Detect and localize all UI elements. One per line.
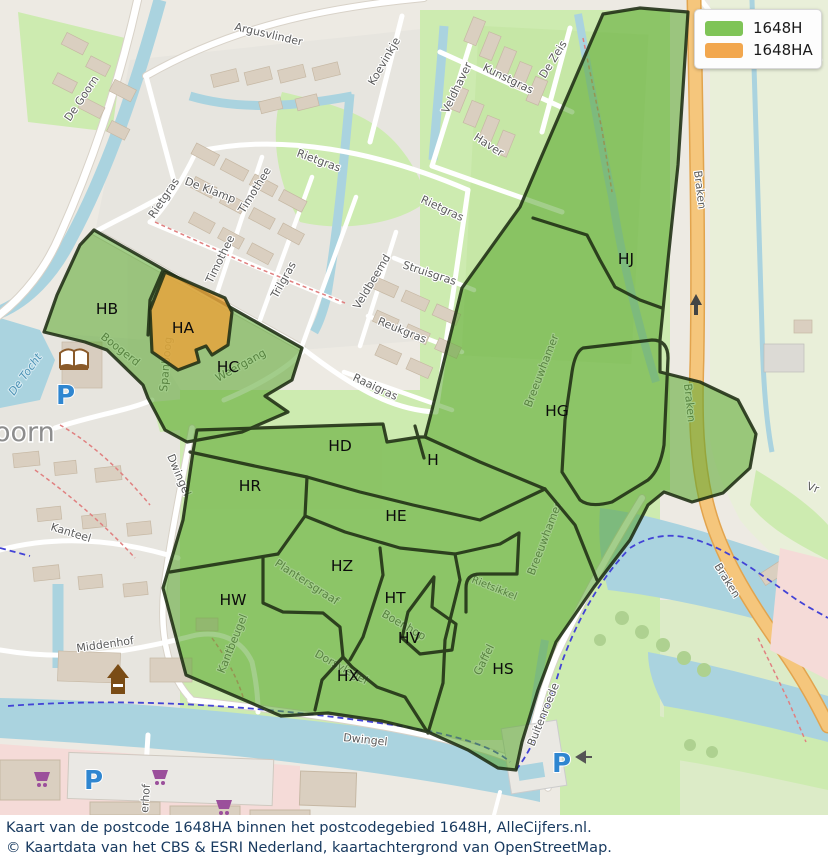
library-icon xyxy=(60,349,88,370)
map-container: Argusvlinder De Goorn Koevinkje Veldhave… xyxy=(0,0,828,815)
legend-label-1648h: 1648H xyxy=(753,19,802,37)
region-label-hj: HJ xyxy=(618,250,634,268)
region-label-hb: HB xyxy=(96,300,118,318)
parking-icon: P xyxy=(84,766,103,796)
map-caption: Kaart van de postcode 1648HA binnen het … xyxy=(0,815,828,861)
region-label-hd: HD xyxy=(328,437,352,455)
legend-item-1648ha: 1648HA xyxy=(705,39,811,61)
screenshot-root: Argusvlinder De Goorn Koevinkje Veldhave… xyxy=(0,0,828,861)
legend-swatch-green xyxy=(705,21,743,36)
map-canvas[interactable]: Argusvlinder De Goorn Koevinkje Veldhave… xyxy=(0,0,828,815)
region-label-ha: HA xyxy=(172,319,195,337)
caption-line-2: © Kaartdata van het CBS & ESRI Nederland… xyxy=(6,838,820,858)
region-label-hz: HZ xyxy=(331,557,353,575)
caption-line-1: Kaart van de postcode 1648HA binnen het … xyxy=(6,818,820,838)
legend-item-1648h: 1648H xyxy=(705,17,811,39)
region-label-hr: HR xyxy=(239,477,262,495)
region-label-hg: HG xyxy=(545,402,569,420)
street-label-fragment: erhof xyxy=(138,783,153,814)
region-label-h: H xyxy=(427,451,439,469)
town-label-fragment: oorn xyxy=(0,417,55,448)
region-label-hw: HW xyxy=(220,591,247,609)
map-legend: 1648H 1648HA xyxy=(694,9,822,69)
region-label-hs: HS xyxy=(492,660,514,678)
parking-icon: P xyxy=(56,381,75,411)
parking-icon: P xyxy=(552,749,571,779)
legend-label-1648ha: 1648HA xyxy=(753,41,813,59)
region-label-hx: HX xyxy=(337,667,360,685)
region-label-hv: HV xyxy=(398,629,421,647)
region-label-ht: HT xyxy=(384,589,406,607)
legend-swatch-orange xyxy=(705,43,743,58)
region-label-hc: HC xyxy=(217,358,239,376)
region-label-he: HE xyxy=(385,507,406,525)
